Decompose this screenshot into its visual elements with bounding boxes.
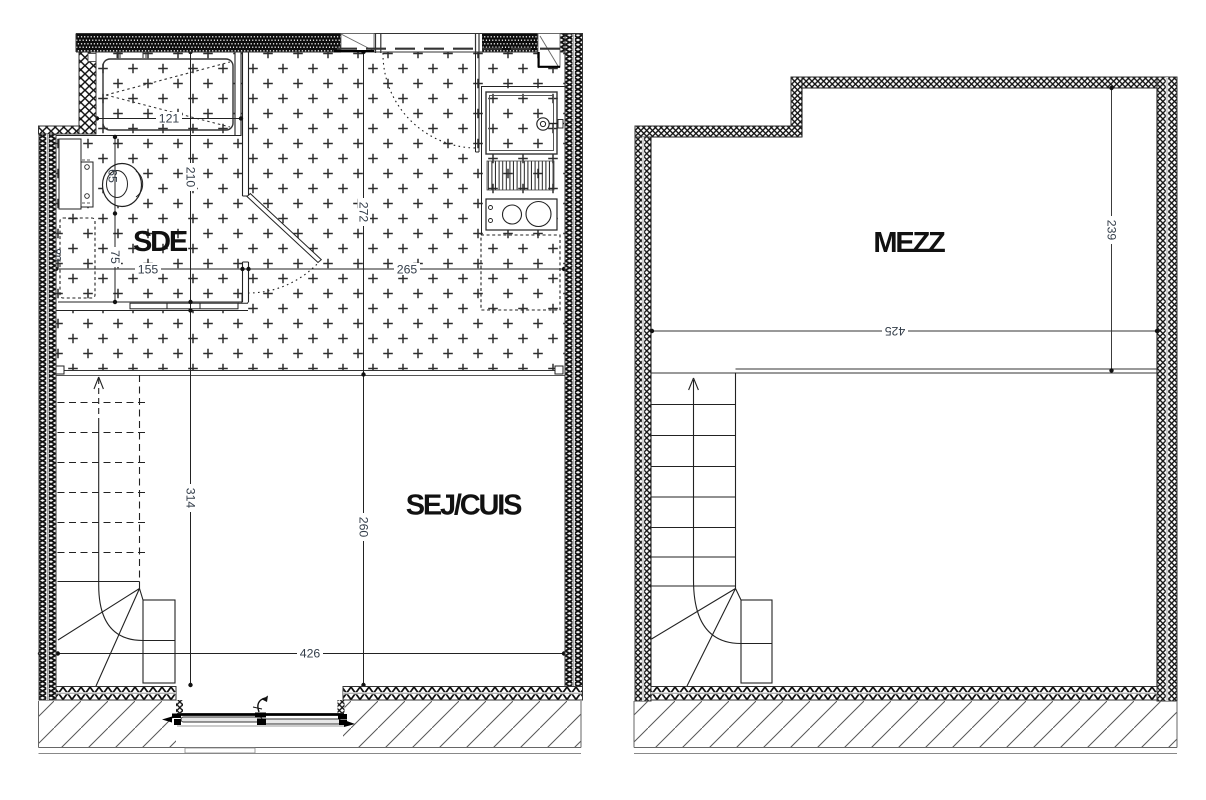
svg-text:425: 425: [885, 324, 906, 338]
svg-text:155: 155: [138, 263, 159, 277]
svg-text:SEJ/CUIS: SEJ/CUIS: [406, 490, 522, 522]
svg-text:314: 314: [184, 488, 198, 509]
svg-text:121: 121: [159, 112, 180, 126]
svg-text:239: 239: [1105, 220, 1119, 241]
svg-text:MEZZ: MEZZ: [873, 227, 945, 259]
svg-text:426: 426: [300, 647, 321, 661]
svg-text:75: 75: [108, 250, 122, 264]
svg-text:265: 265: [397, 263, 418, 277]
svg-text:210: 210: [184, 167, 198, 188]
svg-text:272: 272: [357, 202, 371, 223]
svg-text:65: 65: [106, 169, 120, 183]
svg-text:260: 260: [357, 517, 371, 538]
svg-text:SDE: SDE: [133, 226, 188, 258]
